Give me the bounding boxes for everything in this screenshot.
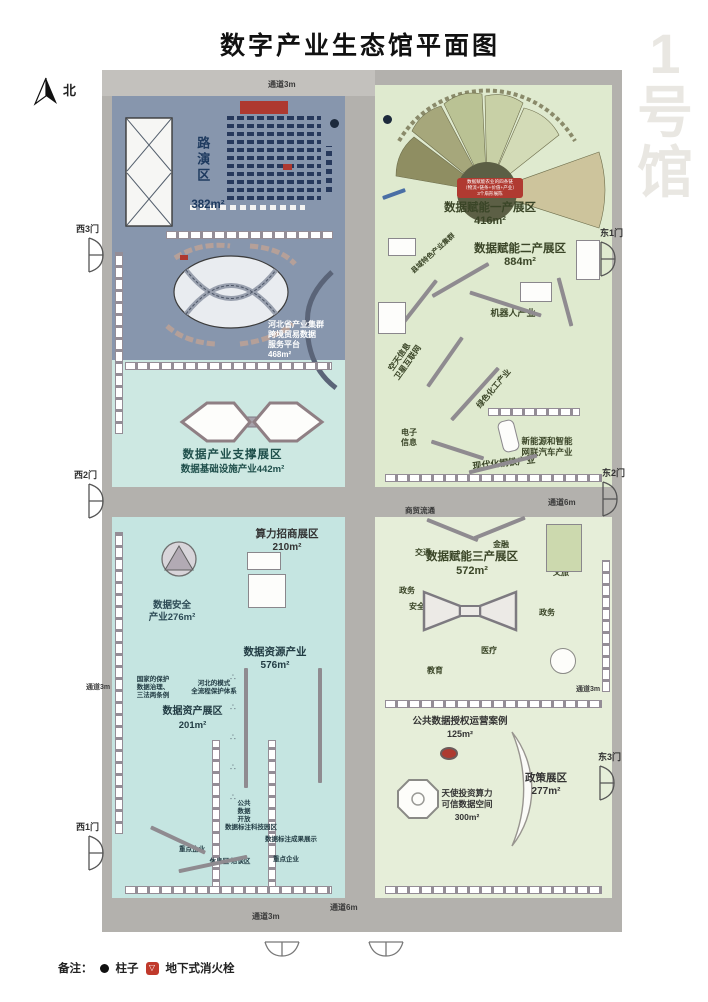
door-label-west-3: 西3门	[76, 222, 99, 235]
door-label-east-2: 东2门	[602, 466, 625, 479]
sector-government: 政务	[532, 608, 562, 618]
center-aisle-label: 通道6m	[548, 497, 576, 508]
north-arrow-icon	[33, 76, 59, 106]
sector-education: 教育	[420, 666, 450, 676]
hall-number-watermark: 1 号 馆	[626, 24, 704, 202]
secondary-zone-name: 数据赋能二产展区	[450, 242, 590, 256]
door-icon-east-2	[600, 480, 620, 518]
nw-west-booth-column	[115, 252, 123, 434]
pillar-icon	[100, 964, 109, 973]
primary-zone-name: 数据赋能一产展区	[420, 201, 560, 215]
floor-plan-page: { "header": { "title": "数字产业生态馆平面图", "ha…	[0, 0, 708, 1002]
data-support-sub: 数据基础设施产业442m²	[150, 464, 315, 476]
public-data-name: 公共数据授权运营案例	[400, 716, 520, 728]
sector-transport: 交通	[408, 548, 438, 558]
asset-booth-column-left	[212, 740, 220, 892]
booth	[247, 552, 281, 570]
sw-bottom-booths	[125, 886, 332, 894]
legend: 备注： 柱子 ▽ 地下式消火栓	[58, 960, 235, 976]
hexagon-booths	[172, 396, 332, 448]
resource-zone-area: 576m²	[215, 660, 335, 673]
hydrant-marker	[440, 747, 458, 760]
door-icon-west-3	[86, 236, 106, 274]
se-east-booths	[602, 560, 610, 692]
booth	[378, 302, 406, 334]
ne-bottom-booths	[385, 474, 602, 482]
se-mid-booths	[385, 700, 602, 708]
sector-finance: 金融	[486, 540, 516, 550]
triangle-circle-booth	[160, 540, 198, 578]
pillar-marker-nw	[330, 119, 339, 128]
commerce-aisle-label: 商贸流通	[405, 505, 435, 516]
booth-cluster-dots: ∴	[230, 762, 236, 773]
asset-zone-area: 201m²	[140, 720, 245, 732]
data-support-name: 数据产业支撑展区	[150, 448, 315, 462]
legend-hydrant-label: 地下式消火栓	[166, 960, 235, 976]
left-aisle-label: 通道3m	[86, 682, 110, 692]
bowtie-booths	[420, 588, 520, 634]
pillar-marker-ne	[383, 115, 392, 124]
resource-zone-name: 数据资源产业	[215, 646, 335, 659]
door-icon-east-3	[597, 764, 617, 802]
computing-zone-name: 算力招商展区	[232, 528, 342, 541]
ne-booth-row	[488, 408, 580, 416]
right-aisle-label: 通道3m	[576, 684, 600, 694]
angel-zone-area: 300m²	[428, 812, 506, 823]
roadshow-name: 路演区	[194, 136, 210, 184]
fan-center-banner: 数据赋能农业的四条链 （物流+链条+价值+产业） 3个扇形展陈	[457, 178, 523, 198]
open-data-note: 公共数据开放	[236, 800, 252, 824]
booth	[388, 238, 416, 256]
nw-red-booth-marker	[180, 255, 188, 260]
se-bottom-booths	[385, 886, 602, 894]
door-icon-west-2	[86, 482, 106, 520]
top-aisle-label: 通道3m	[268, 79, 296, 90]
door-icon-south-right	[367, 939, 405, 959]
door-icon-east-1	[598, 240, 618, 278]
roadshow-area: 382m²	[186, 198, 230, 212]
secondary-zone-area: 884m²	[450, 256, 590, 270]
security-zone-label: 数据安全 产业276m²	[136, 600, 208, 624]
door-label-west-1: 西1门	[76, 820, 99, 833]
booth-cluster-dots: ∴	[230, 732, 236, 743]
annotation-park-note: 数据标注科技园区	[216, 824, 286, 832]
door-icon-west-1	[86, 834, 106, 872]
roadshow-seating	[227, 116, 321, 200]
primary-zone-area: 416m²	[420, 215, 560, 229]
door-label-west-2: 西2门	[74, 468, 97, 481]
bottom-left-aisle-label: 通道3m	[252, 911, 280, 922]
booth-cluster-dots: ∴	[230, 702, 236, 713]
launch-ceremony-circle	[550, 648, 576, 674]
roadshow-banner	[240, 101, 288, 114]
north-indicator: 北	[33, 76, 93, 106]
booth	[576, 240, 600, 280]
booth	[520, 282, 552, 302]
angel-zone-name: 天使投资算力 可信数据空间	[428, 788, 506, 809]
annotation-results-note: 数据标注成果展示	[256, 836, 326, 844]
tertiary-zone-area: 572m²	[402, 565, 542, 579]
hydrant-icon: ▽	[146, 962, 159, 975]
nw-booth-row	[166, 231, 333, 239]
sw-west-booth-column	[115, 532, 123, 834]
wall-segment	[318, 668, 322, 783]
legend-pillar-label: 柱子	[116, 960, 139, 976]
policy-zone-area: 277m²	[508, 786, 584, 799]
culture-tourism-booth	[546, 524, 582, 572]
top-aisle	[102, 70, 375, 96]
hebei-platform-label: 河北省产业集群 跨境贸易数据 服务平台 468m²	[268, 320, 346, 360]
electronics-label: 电子 信息	[398, 428, 420, 448]
booth	[248, 574, 286, 608]
door-icon-south-left	[263, 939, 301, 959]
booth-cluster-dots: ∴	[230, 672, 236, 683]
nw-mint-top-booths	[125, 362, 332, 370]
policy-zone-name: 政策展区	[508, 772, 584, 785]
page-title: 数字产业生态馆平面图	[100, 26, 620, 62]
roadshow-red-seat-marker	[283, 164, 292, 170]
booth-cluster-dots: ∴	[230, 792, 236, 803]
bottom-center-aisle-label: 通道6m	[330, 902, 358, 913]
north-label: 北	[63, 80, 76, 99]
sector-medical: 医疗	[474, 646, 504, 656]
national-protection-note: 国家的保护 数据治理、 三法两条例	[126, 676, 180, 700]
key-enterprise-note: 重点企业	[266, 856, 306, 864]
sector-government: 政务	[392, 586, 422, 596]
legend-prefix: 备注：	[58, 960, 93, 976]
wall-segment	[244, 668, 248, 788]
roadshow-side-seats	[326, 146, 332, 192]
roadshow-stage	[124, 116, 176, 228]
asset-booth-column-right	[268, 740, 276, 892]
door-label-east-3: 东3门	[598, 750, 621, 763]
